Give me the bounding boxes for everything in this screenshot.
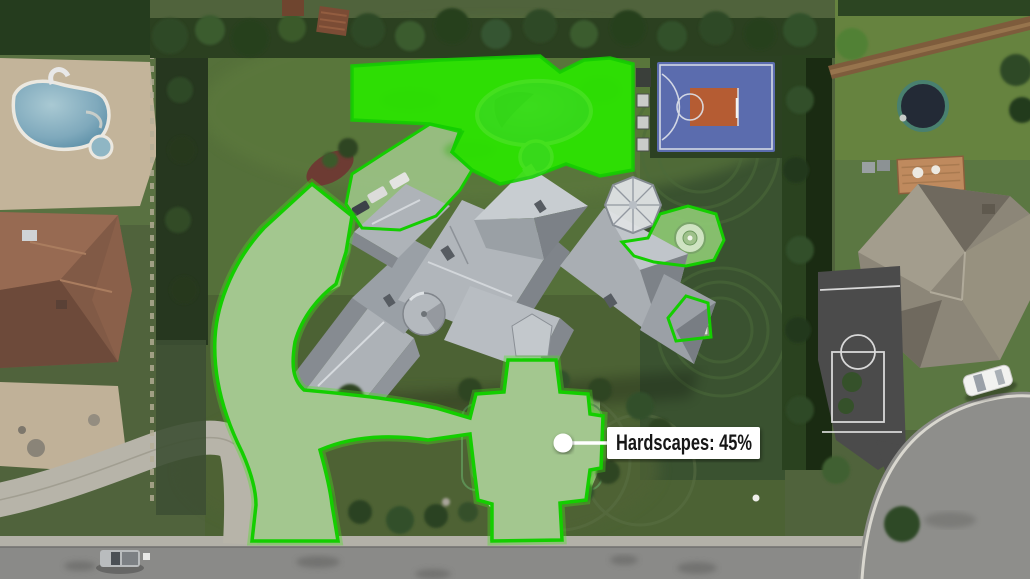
aerial-photo-canvas: Hardscapes: 45% (0, 0, 1030, 579)
sidewalk (0, 536, 870, 547)
point-marker-dot[interactable] (554, 434, 573, 453)
ac-unit (862, 162, 875, 173)
aerial-property-view: Hardscapes: 45% (0, 0, 1030, 579)
ac-unit (877, 160, 890, 171)
fountain (675, 223, 705, 253)
hardscapes-label[interactable]: Hardscapes: 45% (607, 427, 760, 459)
skylight (22, 230, 37, 241)
tree-canopy (836, 28, 868, 60)
street (0, 536, 900, 579)
turret (403, 293, 445, 335)
chimney (56, 300, 67, 309)
chimney (982, 204, 995, 214)
court-key (690, 88, 738, 126)
basketball-court (650, 56, 782, 158)
neighbor-house-left (0, 212, 132, 368)
label-text: Hardscapes: 45% (616, 430, 752, 455)
neighbor-spa (90, 136, 112, 158)
conservatory-dome (605, 177, 661, 233)
trampoline (899, 82, 947, 130)
pergola-roof (316, 6, 349, 36)
